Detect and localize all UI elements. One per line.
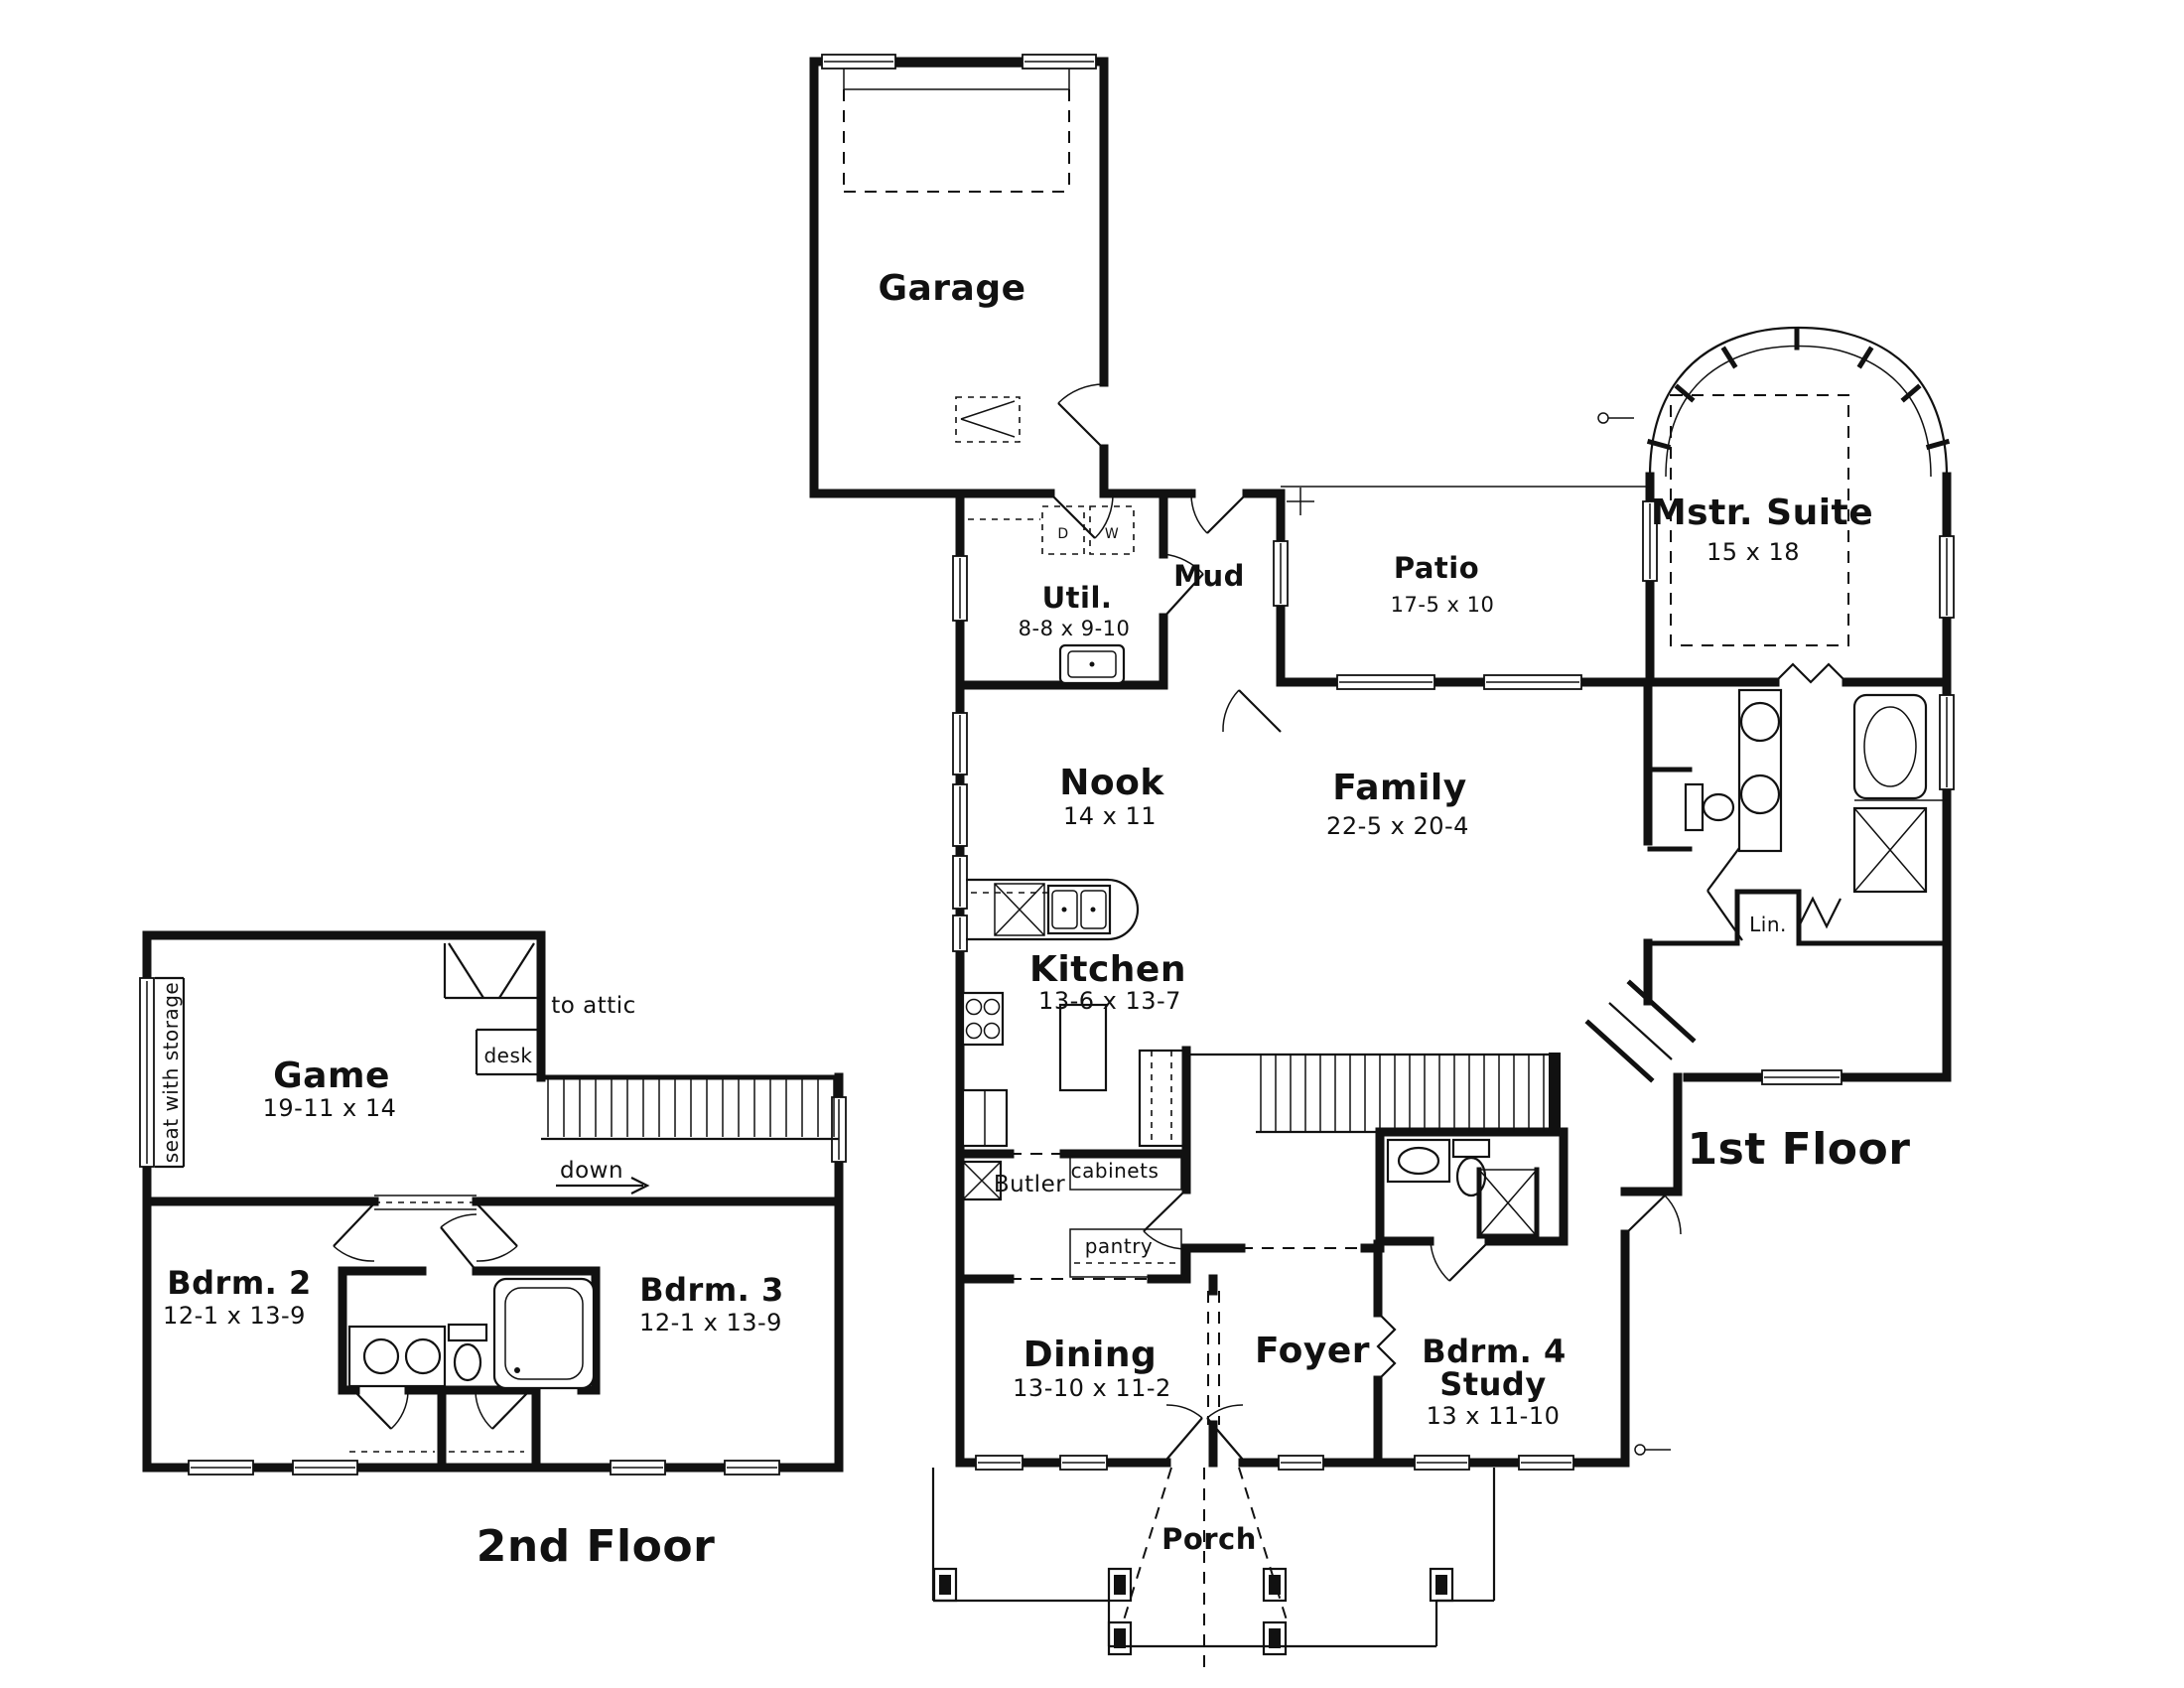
family-label: Family — [1332, 768, 1466, 808]
attic-access-marker — [956, 397, 1020, 442]
pantry-label: pantry — [1085, 1234, 1154, 1258]
patio-label: Patio — [1394, 551, 1479, 585]
shower-icon — [1479, 1170, 1537, 1236]
bdrm3-label: Bdrm. 3 — [639, 1271, 783, 1309]
master-suite-interior — [1671, 395, 1947, 892]
desk-label: desk — [483, 1044, 532, 1067]
cabinets-label: cabinets — [1071, 1159, 1160, 1183]
pocket-door-icon — [1799, 899, 1841, 926]
master-suite-label: Mstr. Suite — [1651, 492, 1873, 533]
butler-label: Butler — [994, 1172, 1065, 1197]
first-floor-title: 1st Floor — [1688, 1124, 1911, 1175]
toilet-tank — [449, 1325, 486, 1340]
porch-column-icon — [1264, 1622, 1286, 1654]
to-attic-label: to attic — [551, 993, 636, 1019]
second-floor-bathroom — [349, 1214, 594, 1388]
toilet-icon — [1704, 794, 1733, 820]
kitchen-sink-icon — [1048, 886, 1110, 933]
garage-door — [844, 67, 1069, 192]
sink-icon — [364, 1339, 398, 1373]
family-dims: 22-5 x 20-4 — [1326, 812, 1469, 840]
linen-label: Lin. — [1749, 913, 1787, 936]
garage-label: Garage — [878, 268, 1025, 309]
tub-icon — [1854, 695, 1926, 798]
washer-label: W — [1105, 526, 1119, 542]
porch-column-icon — [1264, 1569, 1286, 1601]
kitchen-dims: 13-6 x 13-7 — [1038, 987, 1181, 1015]
game-room-dims: 19-11 x 14 — [263, 1094, 397, 1122]
seat-with-storage-label: seat with storage — [159, 982, 183, 1163]
toilet-tank — [1453, 1140, 1489, 1157]
dining-dims: 13-10 x 11-2 — [1013, 1374, 1171, 1402]
mud-label: Mud — [1173, 559, 1245, 593]
attic-closet — [445, 943, 541, 998]
util-dims: 8-8 x 9-10 — [1019, 617, 1131, 640]
patio-dims: 17-5 x 10 — [1391, 593, 1495, 617]
bdrm4-label2: Study — [1439, 1365, 1546, 1403]
pantry-cabinet — [1140, 1051, 1183, 1146]
patio-edge — [1281, 487, 1650, 515]
dining-foyer-opening — [1208, 1291, 1219, 1425]
toilet-icon — [455, 1344, 480, 1380]
bdrm2-label: Bdrm. 2 — [167, 1264, 311, 1302]
second-floor-title: 2nd Floor — [477, 1521, 716, 1572]
second-floor-walls — [147, 935, 839, 1468]
fireplace-icon — [1588, 983, 1693, 1079]
porch — [933, 1468, 1494, 1673]
porch-column-icon — [1431, 1569, 1452, 1601]
tub-icon — [494, 1279, 594, 1388]
toilet-tank — [1686, 784, 1703, 830]
porch-column-icon — [1109, 1569, 1131, 1601]
nook-dims: 14 x 11 — [1063, 802, 1157, 830]
sink-icon — [1741, 703, 1779, 741]
porch-column-icon — [934, 1569, 956, 1601]
shower-icon — [1854, 808, 1926, 892]
dining-label: Dining — [1024, 1335, 1158, 1375]
first-floor-plan: Garage Util. 8-8 x 9-10 Mud Patio 17-5 x… — [814, 55, 1954, 1673]
first-floor-stairs — [1186, 1053, 1561, 1134]
sink-icon — [1399, 1148, 1438, 1174]
down-label: down — [560, 1158, 623, 1184]
kitchen-island — [1060, 1005, 1106, 1090]
dryer-label: D — [1057, 526, 1068, 542]
floor-plan-drawing: Game 19-11 x 14 seat with storage to att… — [0, 0, 2184, 1688]
master-suite-dims: 15 x 18 — [1706, 538, 1800, 566]
bdrm3-dims: 12-1 x 13-9 — [639, 1309, 782, 1336]
porch-column-icon — [1109, 1622, 1131, 1654]
hose-bib-icon — [1598, 413, 1671, 1455]
bdrm2-dims: 12-1 x 13-9 — [163, 1302, 306, 1330]
foyer-label: Foyer — [1255, 1331, 1370, 1371]
porch-label: Porch — [1161, 1522, 1257, 1556]
bdrm4-dims: 13 x 11-10 — [1427, 1402, 1561, 1430]
hall-bathroom — [1388, 1140, 1537, 1236]
kitchen-label: Kitchen — [1029, 949, 1186, 990]
bay-window — [1650, 328, 1947, 477]
util-label: Util. — [1042, 581, 1113, 615]
second-floor-plan: Game 19-11 x 14 seat with storage to att… — [140, 935, 846, 1572]
first-floor-windows — [822, 55, 1954, 1470]
nook-label: Nook — [1059, 763, 1164, 803]
pocket-door-icon — [1775, 664, 1846, 682]
floor-plan-canvas: Game 19-11 x 14 seat with storage to att… — [0, 0, 2184, 1688]
sink-icon — [406, 1339, 440, 1373]
newel-post — [1549, 1053, 1561, 1134]
sink-icon — [1741, 775, 1779, 813]
pocket-door-icon — [1378, 1313, 1395, 1380]
game-room-label: Game — [273, 1055, 390, 1096]
